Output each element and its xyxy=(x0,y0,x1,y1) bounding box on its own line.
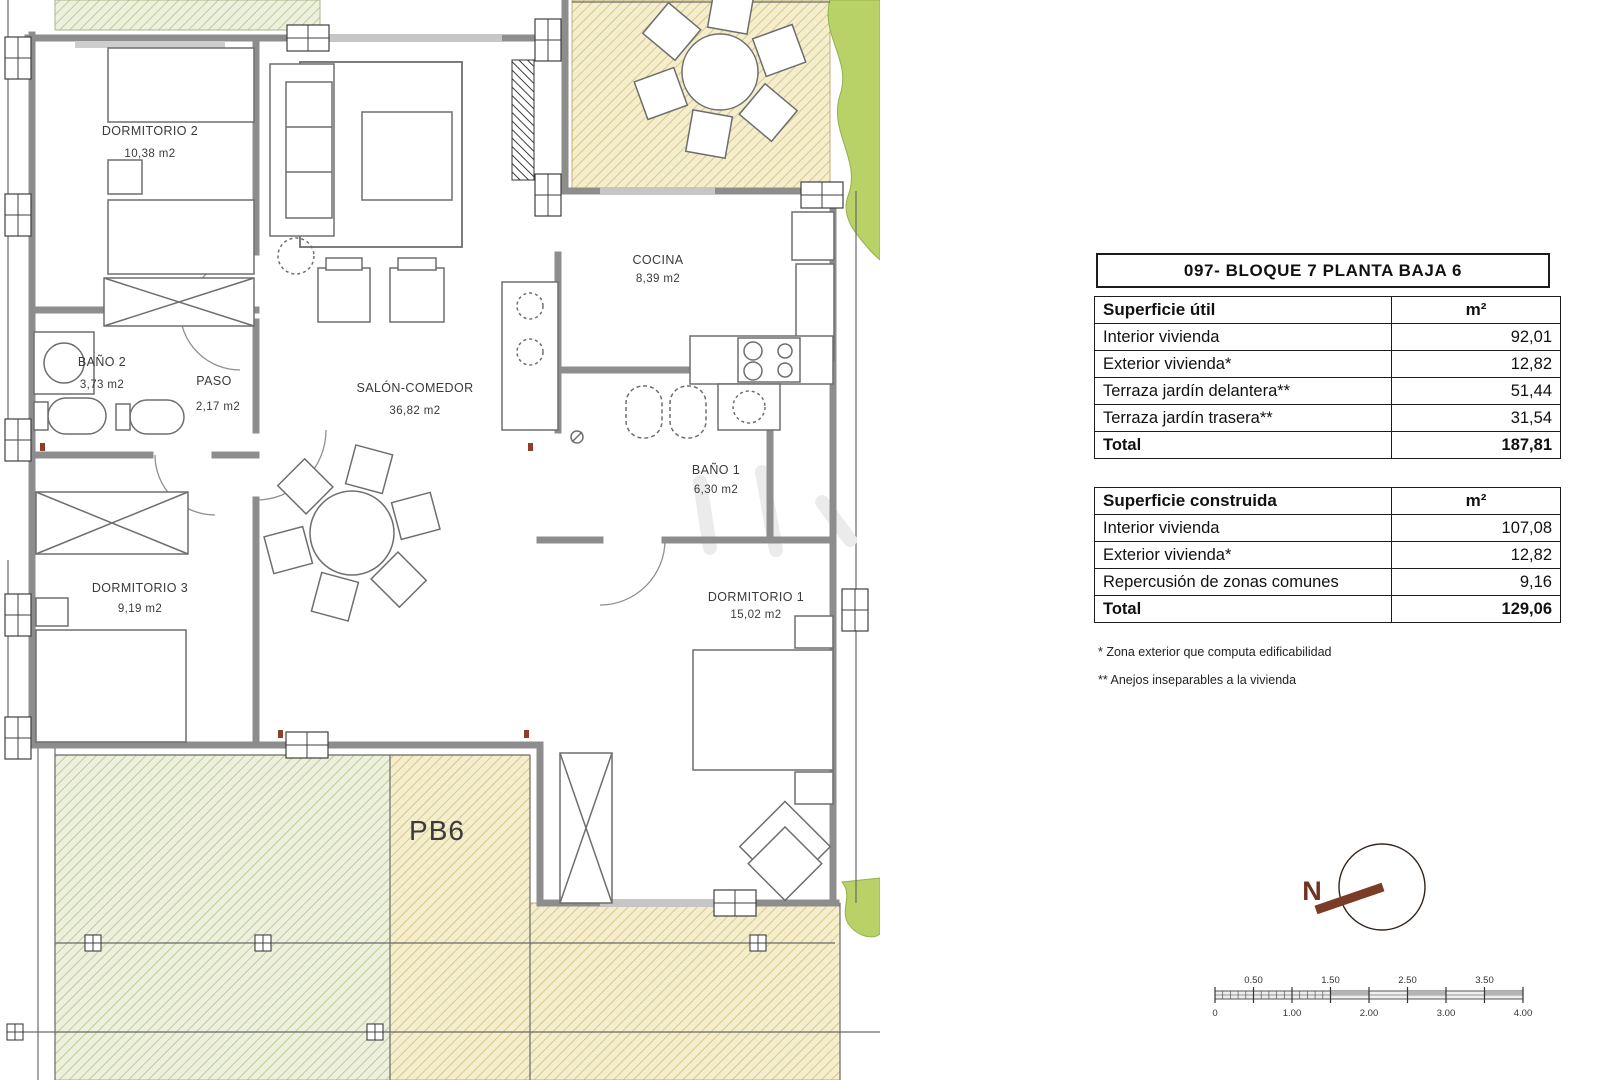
built-area-table: Superficie construida m² Interior vivien… xyxy=(1094,487,1561,623)
north-needle xyxy=(1316,887,1383,910)
table-row: Exterior vivienda* 12,82 xyxy=(1095,542,1561,569)
dorm2-furniture xyxy=(104,48,254,326)
scale-label: 2.00 xyxy=(1360,1008,1379,1019)
room-area-dorm2: 10,38 m2 xyxy=(124,148,175,160)
table-row: Interior vivienda 107,08 xyxy=(1095,515,1561,542)
scale-top-labels: 0.50 1.50 2.50 3.50 xyxy=(1244,975,1494,986)
total-label: Total xyxy=(1095,596,1392,623)
window-dorm2 xyxy=(75,41,225,48)
rear-garden-strip xyxy=(55,0,320,30)
row-label: Repercusión de zonas comunes xyxy=(1095,569,1392,596)
room-label-salon: SALÓN-COMEDOR xyxy=(356,380,473,395)
dorm3-furniture xyxy=(36,492,188,742)
table-row-total: Total 187,81 xyxy=(1095,432,1561,459)
north-label: N xyxy=(1302,876,1322,906)
scale-label: 1.00 xyxy=(1283,1008,1302,1019)
table-row: Terraza jardín trasera** 31,54 xyxy=(1095,405,1561,432)
rear-garden-area xyxy=(55,755,390,1080)
scale-label: 2.50 xyxy=(1398,975,1417,986)
room-label-paso: PASO xyxy=(196,374,231,388)
table-row: Interior vivienda 92,01 xyxy=(1095,324,1561,351)
row-value: 9,16 xyxy=(1392,569,1561,596)
window-terrace xyxy=(600,187,715,195)
room-area-dorm3: 9,19 m2 xyxy=(118,603,162,615)
room-area-salon: 36,82 m2 xyxy=(389,405,440,417)
room-label-dorm3: DORMITORIO 3 xyxy=(92,581,188,595)
room-area-dorm1: 15,02 m2 xyxy=(730,609,781,621)
window-bottom xyxy=(600,899,720,907)
row-value: 107,08 xyxy=(1392,515,1561,542)
table-row-total: Total 129,06 xyxy=(1095,596,1561,623)
unit-header: m² xyxy=(1392,297,1561,324)
row-label: Terraza jardín trasera** xyxy=(1095,405,1392,432)
armchair xyxy=(736,801,835,900)
unit-header: m² xyxy=(1392,488,1561,515)
plan-title-text: 097- BLOQUE 7 PLANTA BAJA 6 xyxy=(1184,261,1462,281)
row-label: Terraza jardín delantera** xyxy=(1095,378,1392,405)
room-label-dorm2: DORMITORIO 2 xyxy=(102,124,198,138)
row-value: 92,01 xyxy=(1392,324,1561,351)
row-label: Interior vivienda xyxy=(1095,324,1392,351)
kitchen-fixtures xyxy=(502,212,834,430)
table-header: Superficie útil xyxy=(1095,297,1392,324)
room-area-paso: 2,17 m2 xyxy=(196,401,240,413)
row-label: Exterior vivienda* xyxy=(1095,351,1392,378)
table-header: Superficie construida xyxy=(1095,488,1392,515)
scale-label: 3.00 xyxy=(1437,1008,1456,1019)
scale-label: 4.00 xyxy=(1514,1008,1533,1019)
bath1-fixtures xyxy=(571,384,780,443)
row-value: 31,54 xyxy=(1392,405,1561,432)
north-compass: N xyxy=(1240,800,1460,960)
table-row: Superficie construida m² xyxy=(1095,488,1561,515)
front-garden-area xyxy=(530,903,840,1080)
room-label-cocina: COCINA xyxy=(632,253,683,267)
row-value: 12,82 xyxy=(1392,542,1561,569)
scale-label: 1.50 xyxy=(1321,975,1340,986)
row-label: Exterior vivienda* xyxy=(1095,542,1392,569)
room-label-dorm1: DORMITORIO 1 xyxy=(708,590,804,604)
row-value: 51,44 xyxy=(1392,378,1561,405)
unit-label-pb6: PB6 xyxy=(409,815,465,846)
scale-label: 0 xyxy=(1212,1008,1217,1019)
footnote-anejos: ** Anejos inseparables a la vivienda xyxy=(1098,673,1296,687)
tall-window-salon xyxy=(512,60,534,180)
room-area-cocina: 8,39 m2 xyxy=(636,273,680,285)
useful-area-table: Superficie útil m² Interior vivienda 92,… xyxy=(1094,296,1561,459)
pb6-terrace-area xyxy=(390,755,530,1080)
total-label: Total xyxy=(1095,432,1392,459)
room-label-bath1: BAÑO 1 xyxy=(692,463,740,477)
graphic-scale-bar: 0.50 1.50 2.50 3.50 0 1.00 2.00 3.00 4.0… xyxy=(1170,950,1560,1025)
floor-plan-drawing: DORMITORIO 2 10,38 m2 BAÑO 2 3,73 m2 PAS… xyxy=(0,0,880,1080)
room-label-bath2: BAÑO 2 xyxy=(78,355,126,369)
dorm1-furniture xyxy=(560,616,834,903)
table-row: Exterior vivienda* 12,82 xyxy=(1095,351,1561,378)
table-row: Repercusión de zonas comunes 9,16 xyxy=(1095,569,1561,596)
window-top xyxy=(320,34,502,42)
floor-plan-sheet: DORMITORIO 2 10,38 m2 BAÑO 2 3,73 m2 PAS… xyxy=(0,0,1620,1080)
scale-shaded-segments xyxy=(1331,991,1524,995)
row-label: Interior vivienda xyxy=(1095,515,1392,542)
salon-furniture xyxy=(264,62,462,621)
plant xyxy=(278,238,314,274)
table-row: Superficie útil m² xyxy=(1095,297,1561,324)
row-value: 12,82 xyxy=(1392,351,1561,378)
scale-bottom-labels: 0 1.00 2.00 3.00 4.00 xyxy=(1212,1008,1532,1019)
plan-title: 097- BLOQUE 7 PLANTA BAJA 6 xyxy=(1096,253,1550,288)
room-area-bath2: 3,73 m2 xyxy=(80,379,124,391)
room-area-bath1: 6,30 m2 xyxy=(694,484,738,496)
footnote-exterior: * Zona exterior que computa edificabilid… xyxy=(1098,645,1331,659)
total-value: 187,81 xyxy=(1392,432,1561,459)
dining-table xyxy=(310,491,394,575)
table-row: Terraza jardín delantera** 51,44 xyxy=(1095,378,1561,405)
hedge-vegetation-bottom xyxy=(842,878,880,937)
scale-label: 0.50 xyxy=(1244,975,1263,986)
total-value: 129,06 xyxy=(1392,596,1561,623)
scale-label: 3.50 xyxy=(1475,975,1494,986)
